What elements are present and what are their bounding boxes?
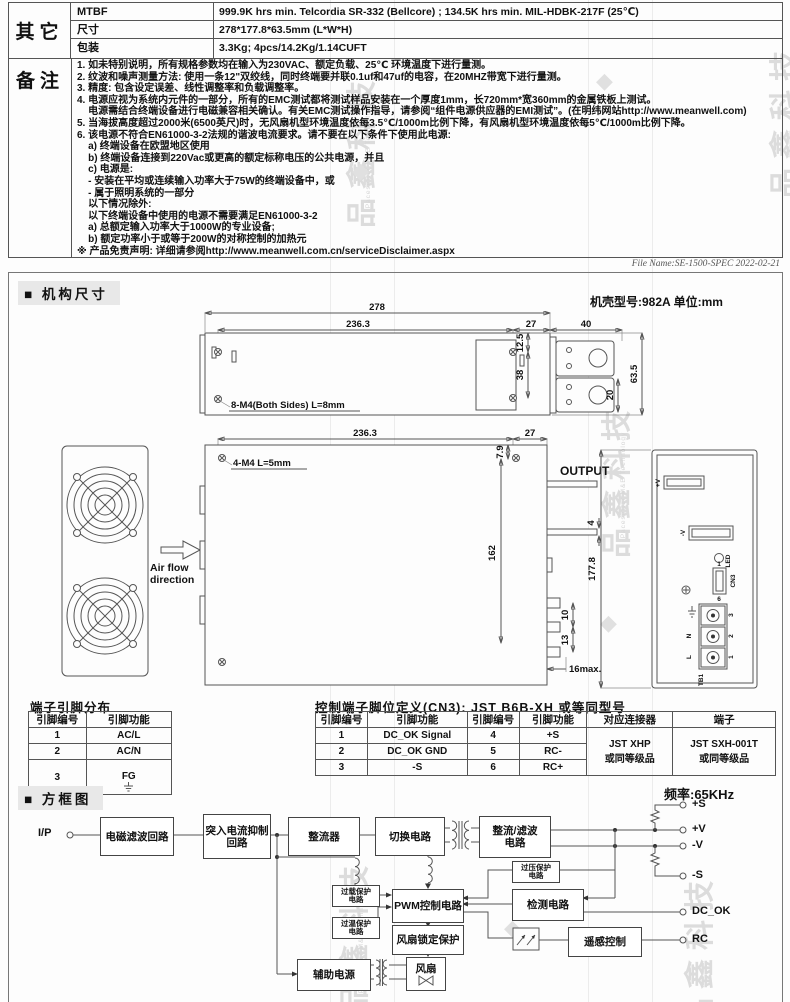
block-remote-control: 遥感控制 — [568, 927, 642, 957]
cn3-cell: 3 — [316, 760, 368, 776]
top-view-drawing: 236.3 27 4-M4 L=5mm 7.9 OUTPUT 4 — [195, 428, 615, 690]
fan-block-label: 风扇 — [416, 963, 437, 975]
cn3-cell: +S — [519, 728, 587, 744]
cn3-cell: 2 — [316, 744, 368, 760]
svg-text:162: 162 — [487, 545, 498, 561]
cn3-cell: 1 — [316, 728, 368, 744]
block-fan-lock: 风扇锁定保护 — [392, 925, 464, 955]
notes-group-label: 备注 — [9, 58, 72, 257]
terminal-minus-v: -V — [692, 839, 703, 851]
svg-text:L: L — [686, 655, 693, 659]
notes-section: 备注 1. 如未特别说明，所有规格参数均在输入为230VAC、额定负载、25℃ … — [8, 58, 783, 258]
terminal-rc: RC — [692, 933, 708, 945]
svg-text:63.5: 63.5 — [629, 364, 640, 383]
svg-text:2: 2 — [728, 634, 735, 638]
svg-text:27: 27 — [525, 428, 536, 439]
svg-text:+V: +V — [655, 478, 662, 487]
svg-text:6: 6 — [717, 596, 721, 603]
svg-text:-V: -V — [680, 529, 687, 536]
pin-cell: AC/N — [86, 744, 171, 760]
svg-text:7.9: 7.9 — [495, 445, 506, 458]
terminal-minus-s: -S — [692, 869, 703, 881]
svg-text:LED: LED — [725, 554, 732, 567]
pin-cell: 1 — [29, 728, 87, 744]
file-name: File Name:SE-1500-SPEC 2022-02-21 — [632, 259, 780, 269]
case-info: 机壳型号:982A 单位:mm — [590, 293, 723, 310]
svg-text:4-M4 L=5mm: 4-M4 L=5mm — [233, 458, 291, 469]
note-line: - 属于照明系统的一部分 — [77, 188, 778, 200]
cn3-terminal-cell: JST SXH-001T 或同等级品 — [673, 728, 776, 776]
svg-text:TB1: TB1 — [698, 673, 705, 686]
note-line: ※ 产品免责声明: 详细请参阅http://www.meanwell.com.c… — [77, 246, 778, 258]
svg-text:CN3: CN3 — [730, 574, 737, 587]
block-olp: 过载保护 电路 — [332, 885, 380, 907]
note-line: a) 终端设备在欧盟地区使用 — [77, 141, 778, 153]
svg-text:8-M4(Both Sides) L=8mm: 8-M4(Both Sides) L=8mm — [231, 400, 345, 411]
rear-view-dim: 177.8 — [587, 450, 651, 688]
block-emi-filter: 电磁滤波回路 — [100, 817, 174, 856]
svg-text:3: 3 — [728, 613, 735, 617]
terminal-dc-ok: DC_OK — [692, 905, 731, 917]
airflow-label: Air flow direction — [150, 562, 222, 586]
fan-view-drawing — [56, 444, 156, 680]
block-ovp: 过压保护 电路 — [512, 861, 560, 883]
notes-body: 1. 如未特别说明，所有规格参数均在输入为230VAC、额定负载、25℃ 环境温… — [72, 58, 782, 257]
svg-text:20: 20 — [605, 390, 616, 401]
svg-text:10: 10 — [560, 610, 571, 621]
datasheet-page: 品鑫科技 Pacesetter M&E Technology 品鑫科技 Pace… — [0, 0, 790, 1002]
cn3-cell: RC+ — [519, 760, 587, 776]
cn3-cell: RC- — [519, 744, 587, 760]
block-rectify-filter: 整流/滤波 电路 — [479, 816, 551, 858]
cn3-header: 端子 — [673, 712, 776, 728]
cn3-header: 引脚编号 — [316, 712, 368, 728]
note-line: 以下情况除外: — [77, 199, 778, 211]
section-title: 机构尺寸 — [42, 287, 108, 302]
cn3-table: 引脚编号 引脚功能 引脚编号 引脚功能 对应连接器 端子 1 DC_OK Sig… — [315, 711, 776, 776]
pin-table-header: 引脚功能 — [86, 712, 171, 728]
fg-label: FG — [122, 771, 136, 782]
svg-text:13: 13 — [560, 635, 571, 646]
pin-cell: 2 — [29, 744, 87, 760]
cn3-cell: DC_OK Signal — [367, 728, 467, 744]
cn3-header: 引脚功能 — [367, 712, 467, 728]
svg-text:12.5: 12.5 — [515, 333, 526, 352]
note-line: b) 额定功率小于或等于200W的对称控制的加热元 — [77, 234, 778, 246]
note-line: 1. 如未特别说明，所有规格参数均在输入为230VAC、额定负载、25℃ 环境温… — [77, 60, 778, 72]
note-line: - 安装在平均或连续输入功率大于75W的终端设备中，或 — [77, 176, 778, 188]
block-detection: 检测电路 — [512, 889, 584, 921]
note-line: c) 电源是: — [77, 164, 778, 176]
side-view-connectors — [550, 337, 614, 413]
svg-text:1: 1 — [717, 561, 721, 568]
spec-value: 999.9K hrs min. Telcordia SR-332 (Bellco… — [214, 3, 782, 21]
section-bullet: ■ — [24, 287, 35, 302]
svg-text:N: N — [686, 633, 693, 638]
input-label: I/P — [38, 827, 51, 839]
svg-text:278: 278 — [369, 302, 385, 313]
pin-cell: AC/L — [86, 728, 171, 744]
cn3-connector-cell: JST XHP 或同等级品 — [587, 728, 673, 776]
spec-attr: 包装 — [71, 39, 214, 58]
block-switching: 切换电路 — [375, 817, 445, 856]
svg-text:38: 38 — [515, 370, 526, 381]
block-fan: 风扇 — [406, 957, 446, 991]
note-line: a) 总额定输入功率大于1000W的专业设备; — [77, 222, 778, 234]
block-aux-power: 辅助电源 — [297, 959, 371, 991]
fan-blade-icon — [417, 975, 435, 986]
svg-text:27: 27 — [526, 319, 537, 330]
note-line: 5. 当海拔高度超过2000米(6500英尺)时，无风扇机型环境温度依每3.5℃… — [77, 118, 778, 130]
cn3-cell: DC_OK GND — [367, 744, 467, 760]
side-view-screw-label: 8-M4(Both Sides) L=8mm — [220, 400, 360, 411]
cn3-header: 对应连接器 — [587, 712, 673, 728]
pin-table: 引脚编号 引脚功能 1 AC/L 2 AC/N 3 FG — [28, 711, 172, 795]
svg-text:236.3: 236.3 — [346, 319, 370, 330]
block-otp: 过温保护 电路 — [332, 917, 380, 939]
block-inrush-limit: 突入电流抑制 回路 — [203, 814, 271, 859]
block-rectifier: 整流器 — [288, 817, 360, 856]
section-bullet: ■ — [24, 792, 35, 807]
table-row: 1 AC/L — [29, 728, 172, 744]
spec-table: 其它 MTBF 999.9K hrs min. Telcordia SR-332… — [8, 2, 783, 59]
table-row: 2 AC/N — [29, 744, 172, 760]
note-line: 4. 电源应视为系统内元件的一部分，所有的EMC测试都将测试样品安装在一个厚度1… — [77, 95, 778, 107]
note-line: 以下终端设备中使用的电源不需要满足EN61000-3-2 — [77, 211, 778, 223]
cn3-cell: 5 — [467, 744, 519, 760]
top-view-body: 4-M4 L=5mm — [200, 445, 547, 685]
block-pwm-control: PWM控制电路 — [392, 889, 464, 923]
side-view-drawing: 278 236.3 27 40 — [190, 303, 650, 435]
spec-value: 278*177.8*63.5mm (L*W*H) — [214, 21, 782, 39]
ground-icon — [123, 782, 134, 792]
section-block-diagram: ■ 方框图 — [18, 786, 103, 810]
spec-attr: MTBF — [71, 3, 214, 21]
svg-text:177.8: 177.8 — [587, 557, 598, 581]
svg-text:236.3: 236.3 — [353, 428, 377, 439]
cn3-cell: 4 — [467, 728, 519, 744]
note-line: 3. 精度: 包含设定误差、线性调整率和负载调整率。 — [77, 83, 778, 95]
spec-group-label: 其它 — [9, 3, 71, 58]
cn3-cell: 6 — [467, 760, 519, 776]
note-line: 6. 该电源不符合EN61000-3-2法规的谐波电流要求。请不要在以下条件下使… — [77, 130, 778, 142]
rear-view-drawing: 177.8 +V -V LED 1 CN3 6 N L — [585, 438, 785, 696]
cn3-cell: -S — [367, 760, 467, 776]
section-title: 方框图 — [42, 792, 92, 807]
note-line: 2. 纹波和噪声测量方法: 使用一条12"双绞线，同时终端要并联0.1uf和47… — [77, 72, 778, 84]
terminal-plus-s: +S — [692, 798, 706, 810]
section-mechanical: ■ 机构尺寸 — [18, 281, 120, 305]
pin-table-header: 引脚编号 — [29, 712, 87, 728]
terminal-plus-v: +V — [692, 823, 706, 835]
note-line: b) 终端设备连接到220Vac或更高的额定标称电压的公共电源，并且 — [77, 153, 778, 165]
svg-text:40: 40 — [581, 319, 592, 330]
cn3-header: 引脚功能 — [519, 712, 587, 728]
svg-text:1: 1 — [728, 655, 735, 659]
cn3-header: 引脚编号 — [467, 712, 519, 728]
spec-attr: 尺寸 — [71, 21, 214, 39]
spec-value: 3.3Kg; 4pcs/14.2Kg/1.14CUFT — [214, 39, 782, 58]
table-row: 1 DC_OK Signal 4 +S JST XHP 或同等级品 JST SX… — [316, 728, 776, 744]
note-line: 电源需结合终端设备进行电磁兼容相关确认。有关EMC测试操作指导，请参阅“组件电源… — [77, 106, 778, 118]
